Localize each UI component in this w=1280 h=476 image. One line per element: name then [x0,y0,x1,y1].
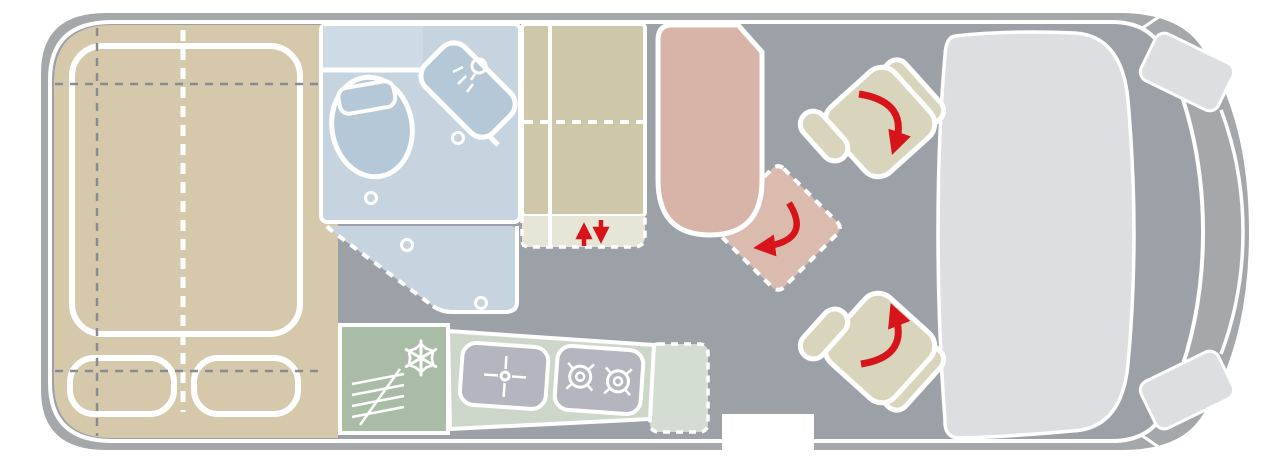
kitchen-sink [459,342,549,410]
bathroom-top-strip [323,26,423,70]
stove-top [554,345,644,415]
kitchen-stove [554,345,644,415]
pillow-right [194,358,298,414]
double-bed [54,25,338,438]
cab-dashboard [938,32,1134,438]
pillow-left [70,358,174,414]
dinette-bench [658,25,762,235]
sink-basin [459,342,549,410]
floor-plan-svg [0,0,1280,476]
floor-plan [0,0,1280,476]
entry-door-cutout [722,414,814,476]
wardrobe [522,24,645,247]
worktop-extension-dashed [650,344,708,432]
